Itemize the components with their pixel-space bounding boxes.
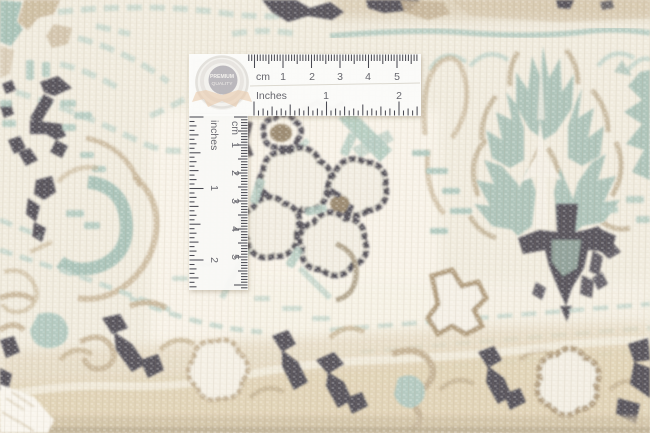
svg-text:cm: cm [229, 121, 241, 135]
svg-text:1: 1 [208, 185, 220, 191]
svg-text:1: 1 [280, 71, 286, 83]
svg-text:1: 1 [323, 90, 329, 102]
svg-text:QUALITY: QUALITY [212, 81, 234, 87]
svg-text:3: 3 [337, 71, 343, 83]
svg-text:2: 2 [208, 257, 220, 263]
svg-text:3: 3 [229, 198, 241, 204]
svg-text:4: 4 [365, 71, 371, 83]
svg-text:Inches: Inches [256, 90, 287, 102]
svg-text:1: 1 [229, 142, 241, 148]
svg-text:5: 5 [394, 71, 400, 83]
svg-text:2: 2 [229, 170, 241, 176]
svg-text:2: 2 [396, 90, 402, 102]
svg-text:4: 4 [229, 226, 241, 232]
svg-text:2: 2 [309, 71, 315, 83]
svg-text:inches: inches [208, 120, 220, 150]
svg-text:PREMIUM: PREMIUM [210, 74, 234, 80]
svg-text:5: 5 [229, 254, 241, 260]
svg-text:cm: cm [256, 71, 270, 83]
